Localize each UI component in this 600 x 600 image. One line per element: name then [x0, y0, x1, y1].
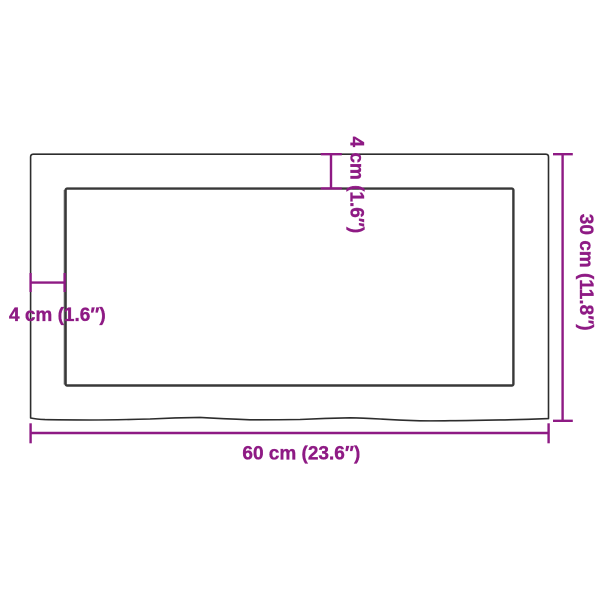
- svg-text:30 cm (11.8″): 30 cm (11.8″): [575, 214, 596, 331]
- svg-text:4 cm (1.6″): 4 cm (1.6″): [9, 305, 106, 326]
- svg-text:4 cm (1.6″): 4 cm (1.6″): [346, 137, 367, 234]
- svg-text:60 cm (23.6″): 60 cm (23.6″): [242, 444, 360, 465]
